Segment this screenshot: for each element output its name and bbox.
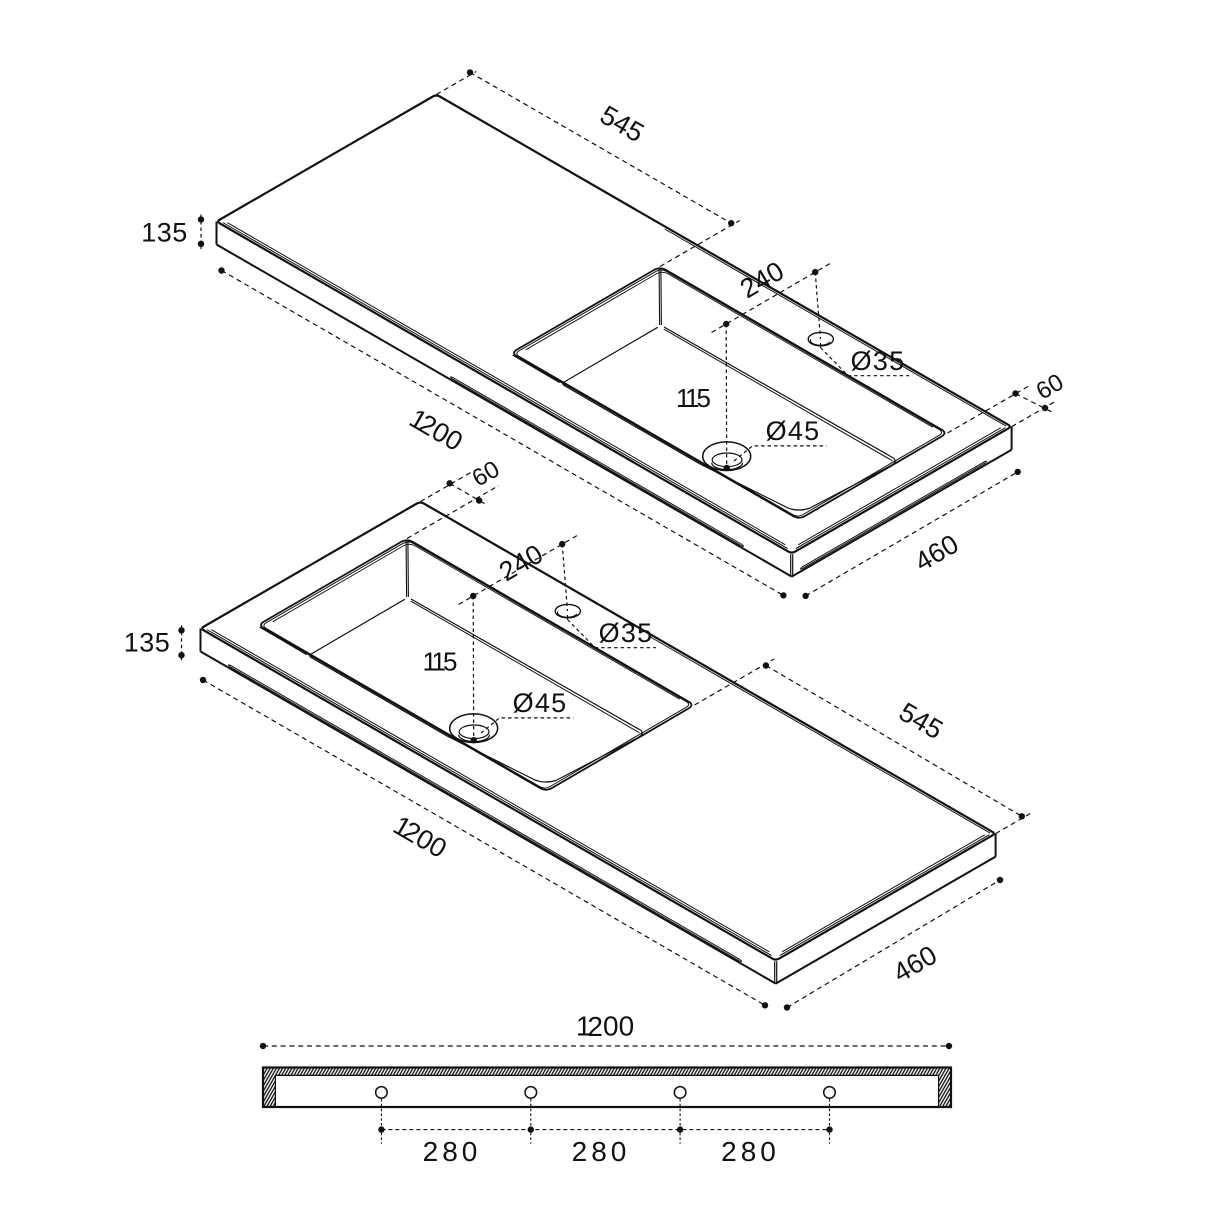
svg-text:Ø35: Ø35	[851, 346, 906, 376]
svg-text:1200: 1200	[576, 1011, 634, 1042]
svg-text:Ø45: Ø45	[513, 688, 568, 718]
svg-text:280: 280	[572, 1136, 631, 1167]
svg-text:115: 115	[423, 647, 458, 677]
svg-text:135: 135	[141, 218, 188, 248]
svg-text:Ø35: Ø35	[599, 618, 654, 648]
svg-text:Ø45: Ø45	[766, 416, 821, 446]
svg-text:280: 280	[721, 1136, 780, 1167]
svg-text:135: 135	[124, 628, 171, 658]
svg-text:115: 115	[676, 383, 711, 413]
svg-text:280: 280	[423, 1136, 482, 1167]
